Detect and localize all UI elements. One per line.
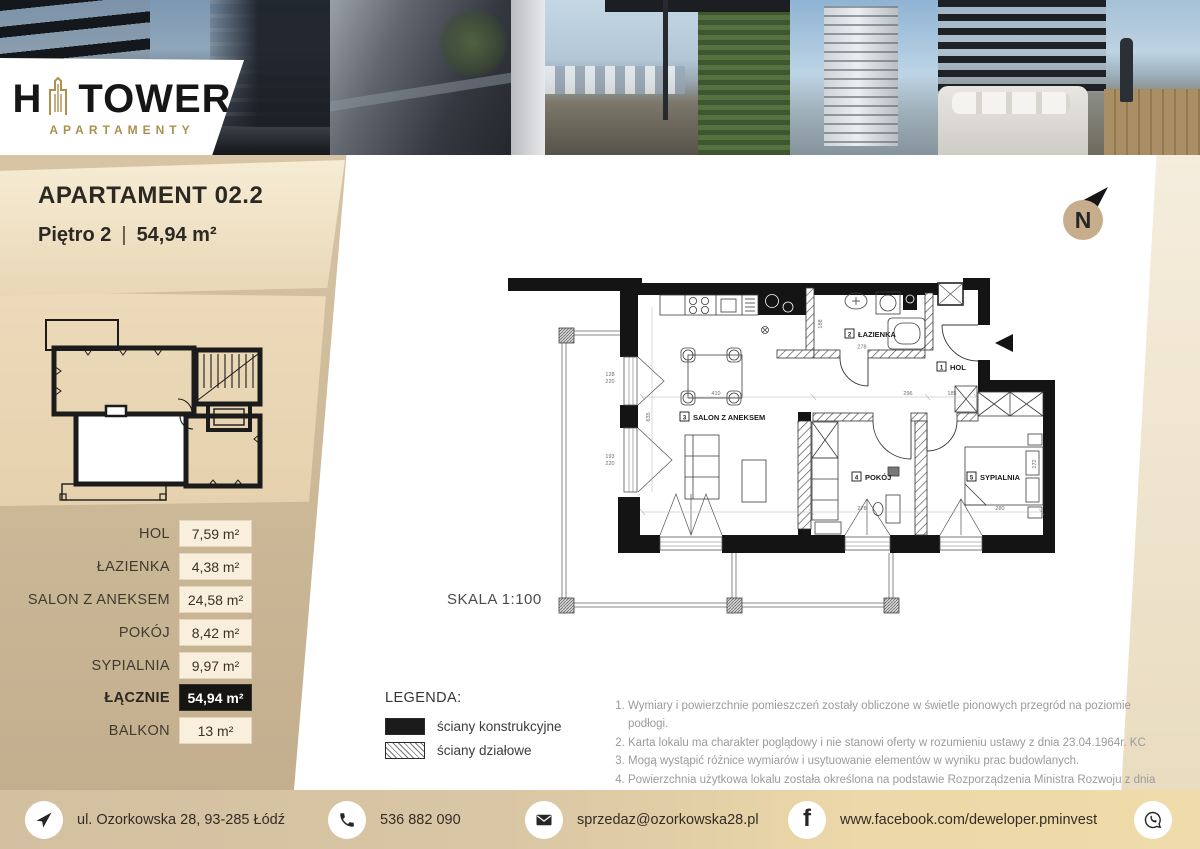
room-area: 8,42 m² xyxy=(179,619,252,646)
right-edge-decoration xyxy=(1118,155,1200,790)
table-row: BALKON 13 m² xyxy=(20,717,252,744)
logo-subtitle: APARTAMENTY xyxy=(49,123,194,137)
photo-balcony xyxy=(330,0,545,155)
legend-title: LEGENDA: xyxy=(385,690,595,706)
svg-text:128: 128 xyxy=(605,372,614,378)
photo-white-tower xyxy=(790,0,938,155)
table-row: HOL 7,59 m² xyxy=(20,520,252,547)
phone-icon xyxy=(328,801,366,839)
note-item: Karta lokalu ma charakter poglądowy i ni… xyxy=(628,735,1168,753)
scale-label: SKALA 1:100 xyxy=(447,591,542,608)
svg-text:193: 193 xyxy=(605,454,614,460)
room-area: 9,97 m² xyxy=(179,652,252,679)
label-lazienka: 2 ŁAZIENKA xyxy=(845,329,896,339)
table-row: ŁAZIENKA 4,38 m² xyxy=(20,553,252,580)
svg-text:SYPIALNIA: SYPIALNIA xyxy=(980,473,1021,482)
whatsapp-icon xyxy=(1134,801,1172,839)
brand-logo: H TOWER APARTAMENTY xyxy=(0,58,244,155)
salon-furniture xyxy=(685,435,766,502)
svg-text:SALON Z ANEKSEM: SALON Z ANEKSEM xyxy=(693,413,765,422)
hatched-wall-swatch xyxy=(385,742,425,759)
apartment-subtitle: Piętro 2|54,94 m² xyxy=(38,224,217,247)
photo-rooftop-lounge xyxy=(938,0,1200,155)
label-salon: 3 SALON Z ANEKSEM xyxy=(680,412,765,422)
floor-label: Piętro 2 xyxy=(38,224,111,246)
room-name: ŁAZIENKA xyxy=(20,559,170,575)
svg-text:ŁAZIENKA: ŁAZIENKA xyxy=(858,330,896,339)
svg-text:220: 220 xyxy=(605,461,614,467)
note-item: Mogą wystąpić różnice wymiarów i usytuow… xyxy=(628,753,1168,771)
room-labels: 1 HOL 2 ŁAZIENKA 3 SALON Z ANEKSEM 4 POK… xyxy=(680,329,1021,482)
balcony-posts xyxy=(559,328,899,613)
room-name: ŁĄCZNIE xyxy=(20,690,170,706)
svg-text:HOL: HOL xyxy=(950,363,966,372)
footer-whatsapp[interactable] xyxy=(1134,790,1172,849)
area-label: 54,94 m² xyxy=(137,224,217,246)
legend-label: ściany konstrukcyjne xyxy=(437,719,562,734)
svg-text:188: 188 xyxy=(818,319,824,328)
footer-address[interactable]: ul. Ozorkowska 28, 93-285 Łódź xyxy=(25,790,285,849)
facebook-icon: f xyxy=(788,801,826,839)
room-area-total: 54,94 m² xyxy=(179,684,252,711)
shaft-box xyxy=(938,283,963,305)
note-item: Wymiary i powierzchnie pomieszczeń zosta… xyxy=(628,698,1168,734)
svg-text:410: 410 xyxy=(711,391,720,397)
tower-icon xyxy=(47,76,73,116)
floor-plan: 278 188 296 185 410 635 278 280 172 128 … xyxy=(500,262,1080,622)
svg-text:185: 185 xyxy=(947,391,956,397)
legend-label: ściany działowe xyxy=(437,743,532,758)
legend-item: ściany konstrukcyjne xyxy=(385,718,595,735)
location-icon xyxy=(25,801,63,839)
svg-text:278: 278 xyxy=(857,506,866,512)
svg-text:POKÓJ: POKÓJ xyxy=(865,473,891,482)
label-hol: 1 HOL xyxy=(937,362,966,372)
room-name: HOL xyxy=(20,526,170,542)
dimension-lines xyxy=(640,307,1044,515)
room-area: 24,58 m² xyxy=(179,586,252,613)
facebook-text: www.facebook.com/deweloper.pminvest xyxy=(840,812,1097,828)
north-arrow: N xyxy=(1050,175,1130,245)
table-row-total: ŁĄCZNIE 54,94 m² xyxy=(20,684,252,711)
svg-text:280: 280 xyxy=(995,506,1004,512)
room-name: BALKON xyxy=(20,723,170,739)
mini-floor-plan xyxy=(28,304,273,504)
label-pokoj: 4 POKÓJ xyxy=(852,472,891,482)
svg-text:635: 635 xyxy=(646,412,652,421)
room-area: 4,38 m² xyxy=(179,553,252,580)
svg-text:278: 278 xyxy=(857,345,866,351)
table-row: SYPIALNIA 9,97 m² xyxy=(20,652,252,679)
footer-email[interactable]: sprzedaz@ozorkowska28.pl xyxy=(525,790,759,849)
photo-roof-terrace-green-wall xyxy=(545,0,790,155)
footer-phone[interactable]: 536 882 090 xyxy=(328,790,461,849)
legend-item: ściany działowe xyxy=(385,742,595,759)
address-text: ul. Ozorkowska 28, 93-285 Łódź xyxy=(77,812,285,828)
email-text: sprzedaz@ozorkowska28.pl xyxy=(577,812,759,828)
apartment-title: APARTAMENT 02.2 xyxy=(38,182,263,210)
phone-text: 536 882 090 xyxy=(380,812,461,828)
footer-bar: ul. Ozorkowska 28, 93-285 Łódź 536 882 0… xyxy=(0,790,1200,849)
flyer-page: H TOWER APARTAMENTY APARTAMENT 02.2 Pięt… xyxy=(0,0,1200,849)
svg-text:296: 296 xyxy=(903,391,912,397)
solid-wall-swatch xyxy=(385,718,425,735)
room-area: 7,59 m² xyxy=(179,520,252,547)
logo-letter-h: H xyxy=(12,82,42,116)
label-sypialnia: 5 SYPIALNIA xyxy=(967,472,1021,482)
footer-facebook[interactable]: f www.facebook.com/deweloper.pminvest xyxy=(788,790,1097,849)
person-figure xyxy=(1120,38,1133,102)
logo-word-tower: TOWER xyxy=(78,82,231,116)
email-icon xyxy=(525,801,563,839)
room-name: SALON Z ANEKSEM xyxy=(20,592,170,608)
svg-text:172: 172 xyxy=(1032,459,1038,468)
table-row: SALON Z ANEKSEM 24,58 m² xyxy=(20,586,252,613)
entrance-arrow-icon xyxy=(995,334,1013,352)
room-area: 13 m² xyxy=(179,717,252,744)
room-name: POKÓJ xyxy=(20,625,170,641)
svg-text:220: 220 xyxy=(605,379,614,385)
legend: LEGENDA: ściany konstrukcyjne ściany dzi… xyxy=(385,690,595,766)
table-row: POKÓJ 8,42 m² xyxy=(20,619,252,646)
room-name: SYPIALNIA xyxy=(20,658,170,674)
separator: | xyxy=(111,224,136,246)
north-letter: N xyxy=(1075,207,1092,233)
